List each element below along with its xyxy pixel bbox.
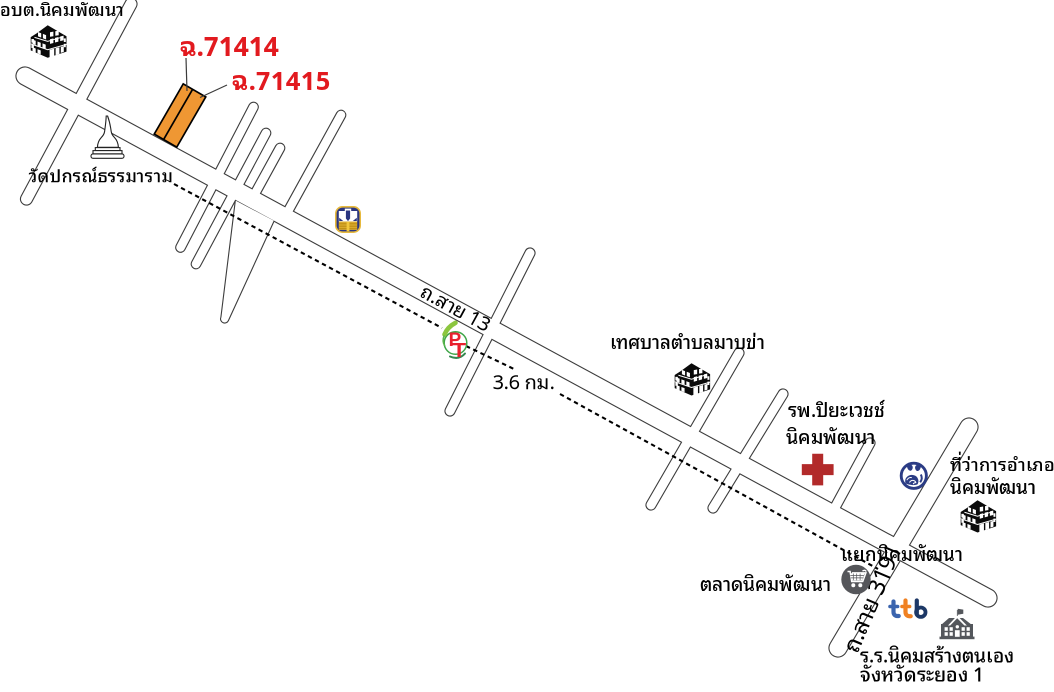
svg-text:T: T: [452, 339, 467, 362]
